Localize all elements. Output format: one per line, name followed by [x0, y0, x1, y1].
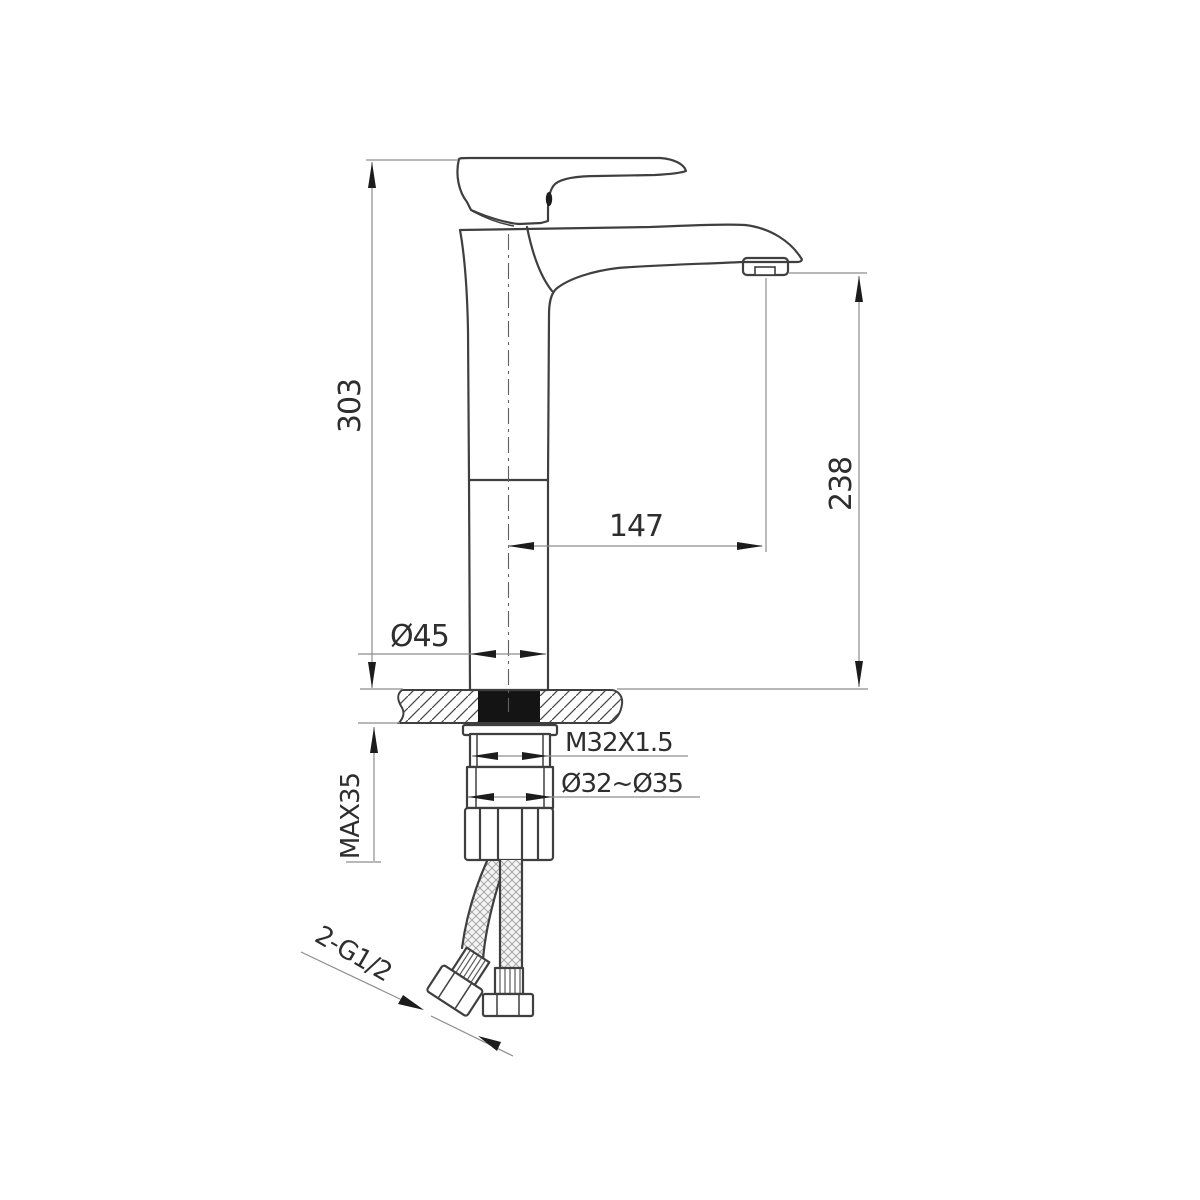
aerator-notch	[755, 267, 775, 275]
dim-303-arrow-bottom	[368, 662, 376, 688]
dim-d45-label: Ø45	[390, 619, 449, 654]
handle-pivot-dot	[546, 192, 552, 206]
vertical-hose-braid	[500, 860, 522, 969]
dim-238-label: 238	[824, 457, 859, 511]
mounting-nut	[465, 808, 553, 860]
vertical-hose-connector	[495, 968, 523, 994]
dim-d32-label: Ø32~Ø35	[561, 769, 683, 799]
faucet-handle	[457, 158, 686, 224]
dim-m32-label: M32X1.5	[565, 728, 673, 758]
countertop	[398, 690, 622, 723]
drawing-canvas: 303 238 147 Ø45 M32X1.5	[0, 0, 1200, 1200]
dim-303-label: 303	[333, 379, 368, 433]
dim-147-arrow-right	[737, 542, 763, 550]
supply-hoses	[426, 860, 533, 1017]
dimension-spout-height: 238	[824, 276, 863, 687]
undermount-assembly	[463, 725, 557, 860]
vertical-hose-nut	[483, 994, 533, 1016]
dimension-overall-height: 303	[333, 162, 376, 688]
faucet-body-spout	[460, 225, 802, 690]
dim-238-arrow-top	[855, 276, 863, 302]
leader-g12-arrow-b	[478, 1036, 501, 1051]
leader-g12-line-b	[431, 1016, 513, 1056]
dim-147-label: 147	[609, 509, 663, 544]
dimensions: 303 238 147 Ø45 M32X1.5	[301, 160, 868, 1056]
technical-drawing: 303 238 147 Ø45 M32X1.5	[0, 0, 1200, 1200]
dim-max35-label: MAX35	[336, 773, 366, 859]
faucet	[457, 158, 801, 712]
leader-g12-arrow-a	[398, 995, 424, 1010]
dimension-max-counter-thickness: MAX35	[336, 727, 381, 862]
dim-max35-arrow-up	[370, 727, 378, 753]
dim-g12-label: 2-G1/2	[310, 920, 397, 987]
dim-238-arrow-bottom	[855, 661, 863, 687]
lock-ring-section	[467, 767, 553, 808]
shank-thread-section	[470, 734, 550, 767]
dim-303-arrow-top	[368, 162, 376, 188]
